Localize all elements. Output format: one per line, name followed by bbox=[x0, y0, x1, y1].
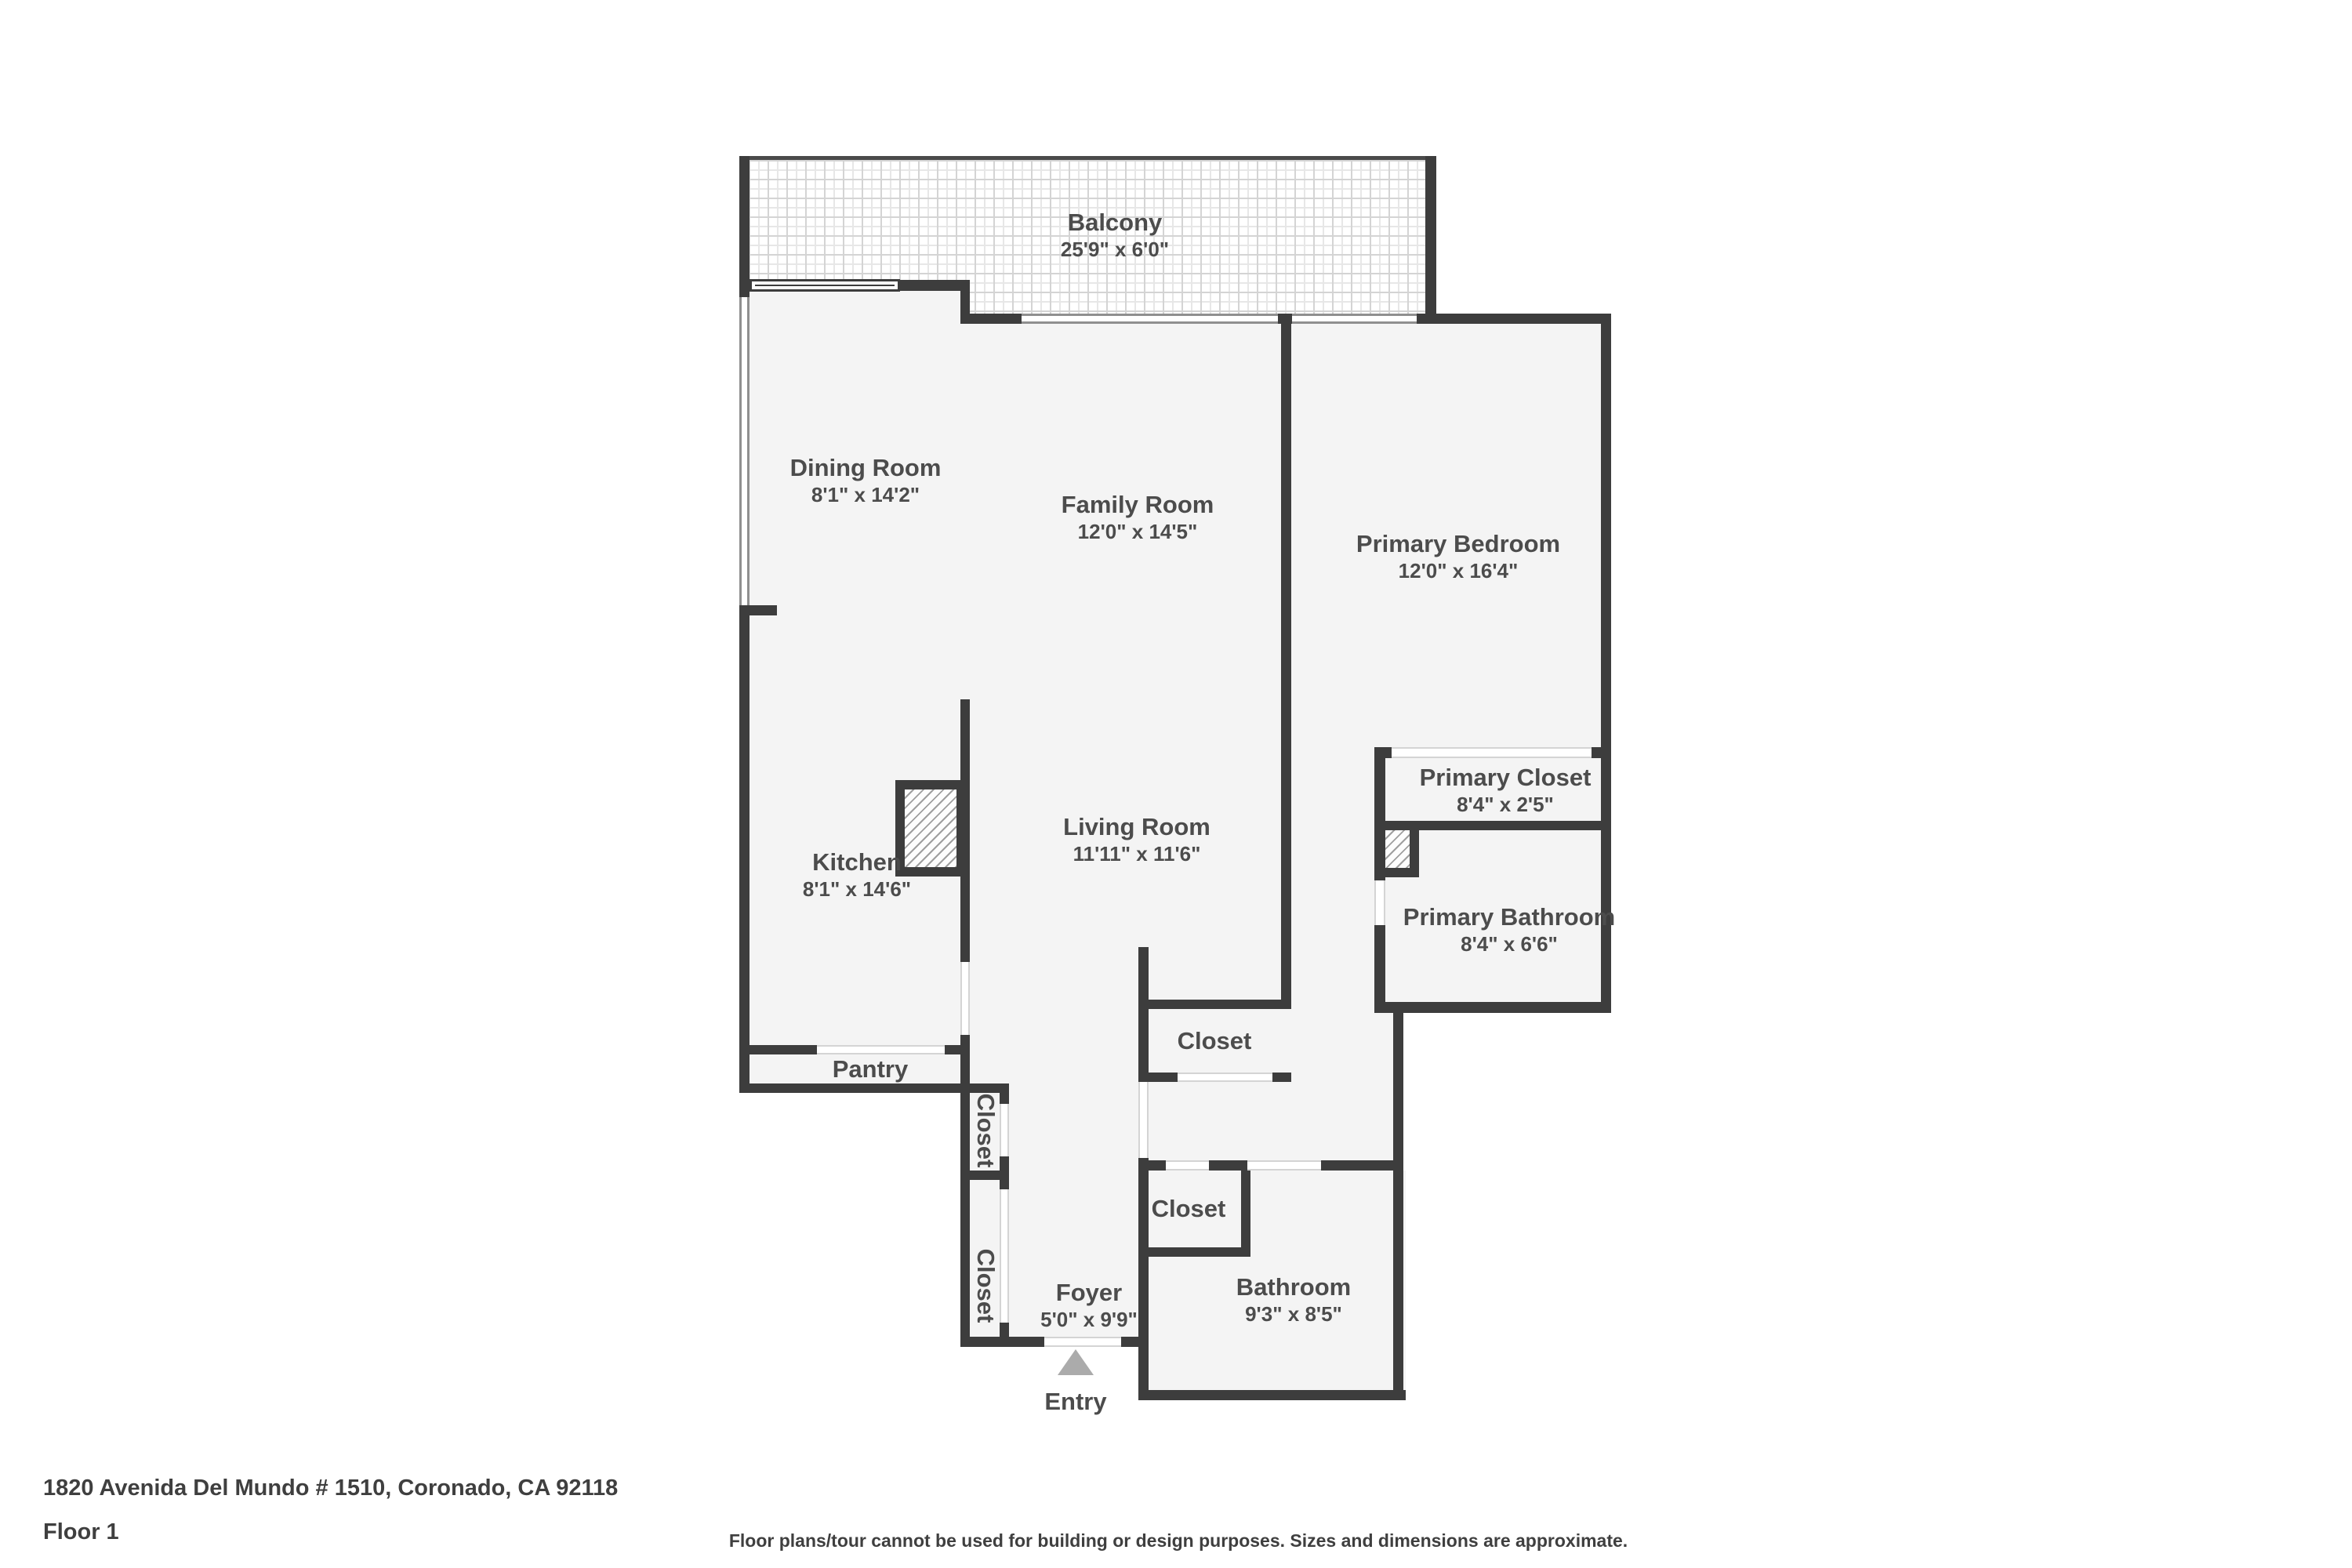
wall-segment bbox=[1138, 1000, 1291, 1009]
wall-segment bbox=[1241, 1171, 1250, 1257]
wall-segment bbox=[1393, 1013, 1403, 1400]
room-label-balcony: Balcony25'9" x 6'0" bbox=[1061, 209, 1169, 262]
door-opening bbox=[960, 962, 970, 1035]
balcony-sliding-door bbox=[750, 279, 900, 292]
room-label-primary-closet: Primary Closet8'4" x 2'5" bbox=[1420, 764, 1592, 817]
room-label-living-room: Living Room11'11" x 11'6" bbox=[1063, 813, 1210, 866]
closet-door-opening bbox=[1392, 747, 1592, 758]
wall-segment bbox=[1138, 1390, 1406, 1400]
wall-segment bbox=[739, 280, 750, 297]
room-label-bathroom-closet: Closet bbox=[1152, 1195, 1226, 1223]
room-label-dining-room: Dining Room8'1" x 14'2" bbox=[790, 454, 942, 507]
wall-segment bbox=[1374, 747, 1392, 758]
wall-segment bbox=[1417, 314, 1436, 324]
room-label-primary-bedroom: Primary Bedroom12'0" x 16'4" bbox=[1356, 530, 1560, 583]
door-opening bbox=[1000, 1189, 1009, 1323]
room-label-bathroom: Bathroom9'3" x 8'5" bbox=[1236, 1273, 1351, 1327]
wall-segment bbox=[739, 156, 1436, 160]
wall-segment bbox=[1138, 1073, 1178, 1082]
wall-segment bbox=[960, 1337, 1044, 1347]
room-label-foyer: Foyer5'0" x 9'9" bbox=[1040, 1279, 1138, 1332]
door-opening bbox=[1247, 1160, 1321, 1171]
door-opening bbox=[1000, 1104, 1009, 1156]
floor-plan: Balcony25'9" x 6'0" Dining Room8'1" x 14… bbox=[0, 0, 2352, 1568]
door-opening bbox=[1138, 1082, 1149, 1158]
wall-segment bbox=[1138, 947, 1149, 1082]
floor-area bbox=[970, 316, 1291, 1093]
wall-segment bbox=[900, 280, 970, 291]
wall-segment bbox=[1000, 1083, 1009, 1104]
wall-segment bbox=[970, 314, 1022, 324]
wall-segment bbox=[960, 1035, 970, 1347]
wall-segment bbox=[1436, 314, 1611, 324]
wall-segment bbox=[960, 280, 970, 324]
door-opening bbox=[1166, 1160, 1209, 1171]
wall-segment bbox=[1425, 156, 1436, 317]
wall-segment bbox=[1592, 747, 1602, 758]
floor-area bbox=[749, 290, 970, 1093]
room-label-pantry: Pantry bbox=[833, 1055, 908, 1083]
wall-segment bbox=[739, 1045, 817, 1054]
wall-segment bbox=[945, 1045, 970, 1054]
wall-segment bbox=[1209, 1160, 1247, 1171]
window bbox=[1022, 314, 1278, 324]
room-label-foyer-closet-lower: Closet bbox=[971, 1249, 1000, 1323]
wall-segment bbox=[1374, 747, 1385, 830]
wall-segment bbox=[739, 1083, 1009, 1093]
room-label-foyer-closet-upper: Closet bbox=[971, 1094, 1000, 1168]
wall-segment bbox=[1138, 1160, 1166, 1171]
address-text: 1820 Avenida Del Mundo # 1510, Coronado,… bbox=[43, 1475, 618, 1501]
room-label-family-room: Family Room12'0" x 14'5" bbox=[1062, 491, 1214, 544]
wall-segment bbox=[1281, 314, 1291, 1009]
wall-segment bbox=[739, 156, 750, 297]
floor-label: Floor 1 bbox=[43, 1519, 119, 1545]
door-opening bbox=[1178, 1073, 1272, 1082]
door-opening bbox=[817, 1045, 945, 1054]
entry-door-opening bbox=[1044, 1337, 1121, 1347]
wall-segment bbox=[1374, 925, 1385, 1013]
wall-segment bbox=[739, 605, 750, 1093]
room-label-hall-closet: Closet bbox=[1178, 1027, 1252, 1055]
wall-segment bbox=[739, 605, 777, 615]
window bbox=[739, 297, 750, 605]
entry-arrow-icon bbox=[1058, 1349, 1094, 1375]
floor-area bbox=[1138, 1093, 1403, 1171]
wall-segment bbox=[1138, 1158, 1149, 1390]
wall-segment bbox=[970, 1171, 1009, 1180]
entry-label: Entry bbox=[1044, 1388, 1106, 1416]
window bbox=[1292, 314, 1417, 324]
wall-segment bbox=[1374, 830, 1385, 880]
door-opening bbox=[1374, 880, 1385, 925]
disclaimer-text: Floor plans/tour cannot be used for buil… bbox=[729, 1530, 1628, 1552]
wall-segment bbox=[1272, 1073, 1291, 1082]
room-label-primary-bathroom: Primary Bathroom8'4" x 6'6" bbox=[1403, 903, 1615, 956]
wall-segment bbox=[1321, 1160, 1403, 1171]
bathroom-chase-hatch bbox=[1385, 830, 1410, 868]
room-label-kitchen: Kitchen8'1" x 14'6" bbox=[803, 848, 911, 902]
wall-segment bbox=[1138, 1247, 1250, 1257]
wall-segment bbox=[1374, 1002, 1611, 1013]
